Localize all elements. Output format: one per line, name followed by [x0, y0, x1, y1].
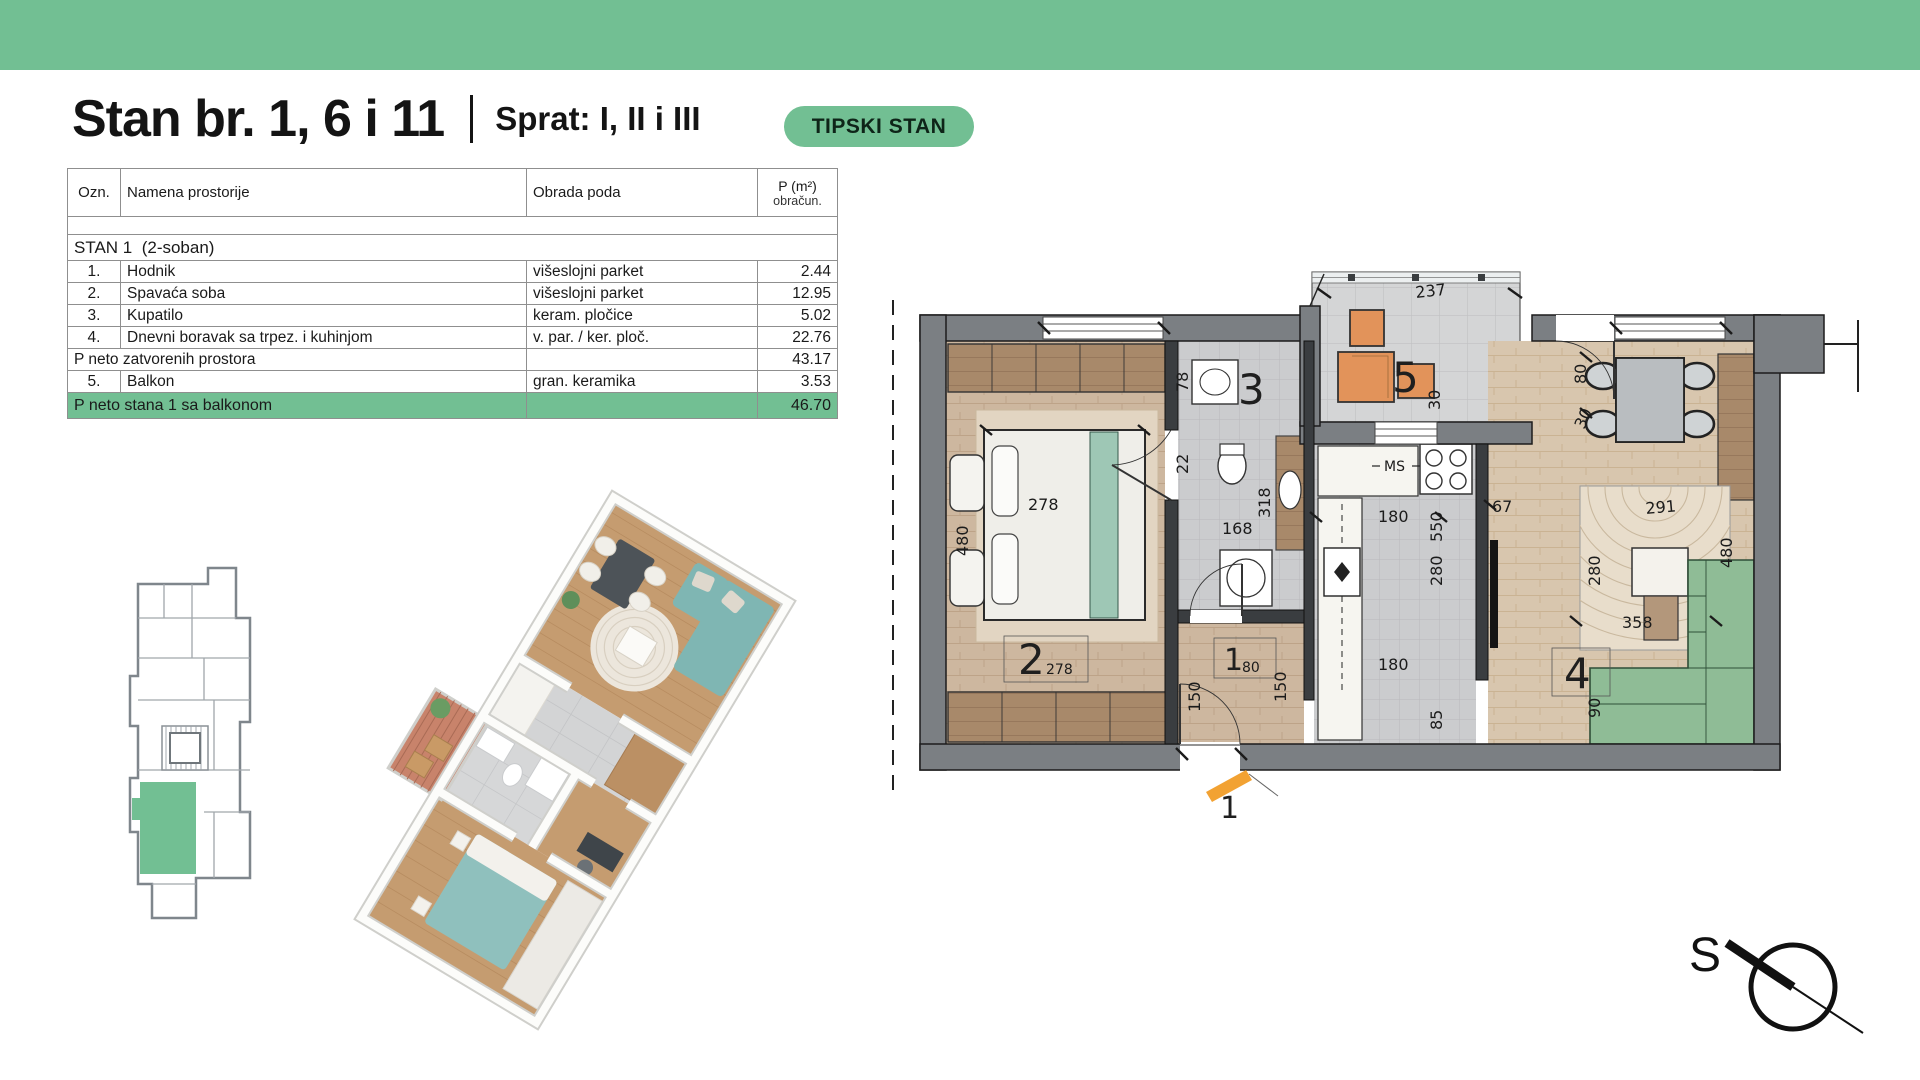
- balcony-door: [1375, 422, 1437, 444]
- table-row: 1. Hodnik višeslojni parket 2.44: [68, 261, 838, 283]
- total-label: P neto stana 1 sa balkonom: [68, 393, 527, 419]
- floor-plan-2d: 237 30 5 80 30 278 480 2 278 78 3 22 318…: [880, 260, 1860, 820]
- table-row: 3. Kupatilo keram. pločice 5.02: [68, 305, 838, 327]
- balcony-bench: [1338, 352, 1394, 402]
- dim-kitchen-top: 180: [1378, 507, 1409, 526]
- page-subtitle: Sprat: I, II i III: [495, 100, 700, 138]
- dim-balcony-side: 30: [1425, 390, 1444, 410]
- dim-bed-width: 278: [1028, 495, 1059, 514]
- subtotal-label: P neto zatvorenih prostora: [68, 349, 527, 371]
- nightstand: [950, 550, 984, 606]
- dim-rug-depth: 280: [1585, 555, 1604, 586]
- room-dim-hodnik: 80: [1242, 660, 1260, 676]
- dining-chair: [1680, 363, 1714, 389]
- col-header-p: P (m²) obračun.: [758, 169, 838, 217]
- wardrobe-top: [948, 344, 1165, 392]
- bath-counter-sink: [1279, 471, 1301, 509]
- tv: [1490, 540, 1498, 648]
- table-row: 2. Spavaća soba višeslojni parket 12.95: [68, 283, 838, 305]
- living-door-opening: [1556, 315, 1614, 341]
- tipski-stan-badge: TIPSKI STAN: [784, 106, 974, 147]
- dim-bath-depth: 318: [1255, 487, 1274, 518]
- room-number-dnevni: 4: [1564, 649, 1591, 698]
- dim-kitchen-len1: 550: [1427, 511, 1446, 542]
- dim-kitchen-len2: 280: [1427, 555, 1446, 586]
- total-value: 46.70: [758, 393, 838, 419]
- dim-bath-width: 168: [1222, 519, 1253, 538]
- room-number-hodnik: 1: [1224, 643, 1243, 678]
- living-window: [1615, 317, 1725, 339]
- col-header-namena: Namena prostorije: [121, 169, 527, 217]
- table-row: 4. Dnevni boravak sa trpez. i kuhinjom v…: [68, 327, 838, 349]
- kitchen-counter-left: [1318, 498, 1362, 740]
- room-number-kupatilo: 3: [1238, 365, 1265, 414]
- dim-bed-length: 480: [953, 525, 972, 556]
- page-title: Stan br. 1, 6 i 11: [72, 89, 444, 149]
- table-total-row: P neto stana 1 sa balkonom 46.70: [68, 393, 838, 419]
- coffee-table: [1632, 548, 1688, 596]
- dim-rug-width: 291: [1645, 496, 1677, 518]
- table-section-row: STAN 1 (2-soban): [68, 235, 838, 261]
- section-label: STAN 1 (2-soban): [68, 235, 838, 261]
- title-row: Stan br. 1, 6 i 11 Sprat: I, II i III: [72, 90, 701, 148]
- dining-chair: [1680, 411, 1714, 437]
- table-spacer-row: [68, 217, 838, 235]
- render-3d: [340, 450, 810, 1070]
- bedroom-window: [1043, 317, 1163, 339]
- nightstand: [950, 455, 984, 511]
- compass-needle-thick: [1727, 943, 1793, 987]
- compass: S: [1675, 915, 1875, 1075]
- title-divider: [470, 95, 473, 143]
- dim-hall-right: 150: [1271, 671, 1290, 702]
- kitchen-ms-label: MS: [1384, 459, 1405, 475]
- bed-runner: [1090, 432, 1118, 618]
- col-header-ozn: Ozn.: [68, 169, 121, 217]
- dim-living-door: 80: [1571, 364, 1590, 384]
- subtotal-value: 43.17: [758, 349, 838, 371]
- tv-console: [1718, 354, 1754, 500]
- dim-bath-gap: 22: [1173, 454, 1192, 474]
- room-area-spavaca: 278: [1046, 662, 1073, 678]
- dim-sofa-side: 480: [1717, 537, 1736, 568]
- table-header-row: Ozn. Namena prostorije Obrada poda P (m²…: [68, 169, 838, 217]
- room-number-spavaca: 2: [1018, 635, 1045, 684]
- balcony-table: [1350, 310, 1384, 346]
- dim-living-gap: 67: [1492, 497, 1512, 516]
- bath-sink: [1192, 360, 1238, 404]
- key-plan-highlighted-unit: [140, 782, 196, 874]
- col-header-obrada: Obrada poda: [527, 169, 758, 217]
- entry-label: 1: [1220, 791, 1239, 820]
- key-plan-elevator: [170, 733, 200, 763]
- compass-north-label: S: [1689, 929, 1721, 982]
- key-plan: [104, 540, 266, 942]
- header-bar: [0, 0, 1920, 70]
- room-spec-table: Ozn. Namena prostorije Obrada poda P (m²…: [67, 168, 838, 419]
- dim-living-width: 358: [1622, 613, 1653, 632]
- room-number-balkon: 5: [1392, 353, 1419, 402]
- dim-hall-left: 150: [1185, 681, 1204, 712]
- dim-hall-bottom: 85: [1427, 710, 1446, 730]
- dim-bath-sink: 78: [1173, 372, 1192, 392]
- dim-balcony-width: 237: [1414, 280, 1446, 302]
- entry-opening: [1180, 742, 1240, 772]
- dim-living-niche: 90: [1585, 698, 1604, 718]
- wardrobe-bottom: [948, 692, 1167, 742]
- bed-pillow: [992, 534, 1018, 604]
- entry-marker: [1206, 770, 1278, 802]
- bathroom-door-opening: [1190, 610, 1242, 623]
- table-subtotal-row: P neto zatvorenih prostora 43.17: [68, 349, 838, 371]
- bed-pillow: [992, 446, 1018, 516]
- table-row-balcony: 5. Balkon gran. keramika 3.53: [68, 371, 838, 393]
- dim-kitchen-bottom: 180: [1378, 655, 1409, 674]
